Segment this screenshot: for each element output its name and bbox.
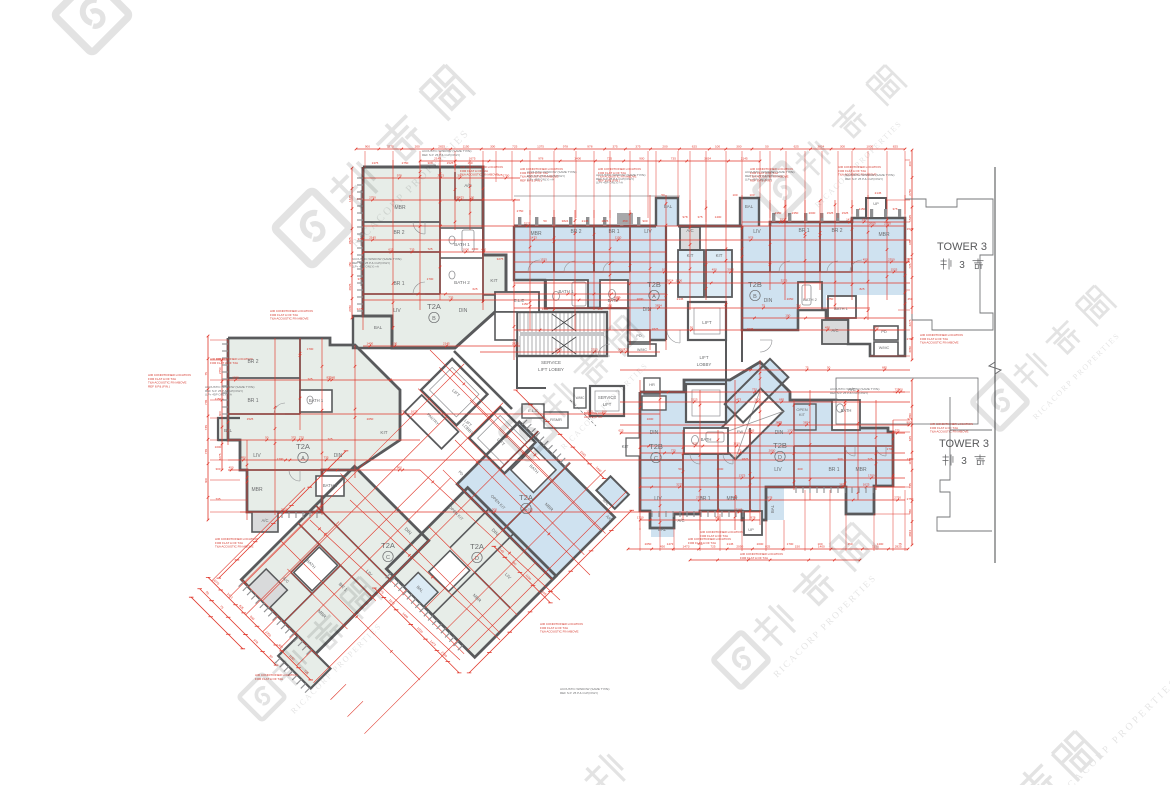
svg-text:T2A: T2A [296, 442, 310, 451]
svg-text:1150: 1150 [542, 307, 549, 311]
svg-text:50: 50 [265, 436, 269, 440]
svg-text:2050: 2050 [645, 542, 652, 546]
svg-text:3824: 3824 [667, 279, 674, 283]
svg-text:450: 450 [825, 326, 830, 330]
svg-text:2145: 2145 [443, 342, 450, 346]
svg-text:TOWER 3: TOWER 3 [937, 241, 987, 253]
svg-text:1525: 1525 [747, 327, 754, 331]
svg-text:MBR: MBR [530, 231, 542, 237]
svg-text:100: 100 [785, 314, 790, 318]
svg-text:2825: 2825 [742, 457, 749, 461]
svg-text:625: 625 [472, 287, 477, 291]
svg-text:1525: 1525 [540, 258, 547, 262]
svg-text:725: 725 [427, 247, 432, 251]
svg-text:75: 75 [401, 410, 405, 414]
svg-text:REF S.P. 25 P.& CLP(ONLY): REF S.P. 25 P.& CLP(ONLY) [560, 691, 598, 695]
svg-text:375: 375 [357, 277, 362, 281]
svg-text:LIV: LIV [654, 496, 662, 502]
svg-text:450: 450 [660, 545, 665, 549]
svg-text:100: 100 [715, 145, 720, 149]
svg-text:MBR: MBR [726, 496, 738, 502]
svg-text:2050: 2050 [787, 297, 794, 301]
svg-text:725: 725 [867, 457, 872, 461]
svg-text:T2B: T2B [748, 280, 762, 289]
svg-text:375: 375 [697, 215, 702, 219]
svg-text:1473: 1473 [457, 196, 464, 200]
svg-text:300: 300 [796, 304, 801, 308]
svg-text:KIT: KIT [687, 253, 694, 258]
svg-text:1150: 1150 [215, 397, 222, 401]
svg-text:LIV: LIV [644, 229, 652, 235]
svg-text:LOBBY: LOBBY [697, 362, 712, 367]
svg-text:BR 1: BR 1 [608, 229, 619, 235]
svg-text:900: 900 [397, 466, 402, 470]
svg-text:KIT: KIT [799, 412, 806, 417]
svg-text:450: 450 [481, 248, 486, 252]
svg-text:1473: 1473 [734, 398, 741, 402]
svg-text:2750: 2750 [517, 209, 524, 213]
svg-text:50: 50 [543, 219, 547, 223]
svg-text:375: 375 [892, 207, 897, 211]
svg-text:A/C: A/C [678, 518, 685, 523]
svg-text:BATH: BATH [701, 437, 712, 442]
svg-text:BAL: BAL [745, 204, 754, 209]
svg-text:3824: 3824 [562, 219, 569, 223]
svg-text:2825: 2825 [652, 327, 659, 331]
svg-text:1150: 1150 [733, 442, 740, 446]
svg-text:MBR: MBR [855, 467, 867, 473]
svg-text:T2B: T2B [773, 441, 787, 450]
svg-text:E: E [524, 507, 528, 513]
svg-text:200: 200 [797, 467, 802, 471]
svg-text:375: 375 [907, 257, 912, 261]
svg-text:2750: 2750 [907, 497, 914, 501]
svg-text:DIN: DIN [643, 307, 652, 313]
svg-text:BR 1: BR 1 [699, 496, 710, 502]
svg-text:2145: 2145 [736, 508, 743, 512]
svg-text:BR 1: BR 1 [247, 398, 258, 404]
svg-text:978: 978 [397, 174, 402, 178]
svg-text:BATH: BATH [608, 298, 619, 303]
svg-text:900: 900 [715, 516, 720, 520]
svg-text:A: A [301, 456, 305, 462]
svg-text:BR 2: BR 2 [570, 229, 581, 235]
svg-text:735: 735 [215, 497, 220, 501]
svg-text:725: 725 [710, 545, 715, 549]
svg-text:2145: 2145 [582, 219, 589, 223]
svg-text:450: 450 [863, 258, 868, 262]
svg-text:1473: 1473 [437, 174, 444, 178]
svg-text:2825: 2825 [602, 219, 609, 223]
svg-text:2050: 2050 [367, 417, 374, 421]
svg-text:300: 300 [492, 508, 497, 512]
svg-text:B: B [432, 316, 436, 322]
svg-text:BATH: BATH [841, 408, 852, 413]
svg-text:BAL: BAL [664, 204, 673, 209]
svg-text:1400: 1400 [574, 157, 581, 161]
svg-text:735: 735 [671, 157, 676, 161]
svg-text:978: 978 [682, 215, 687, 219]
svg-text:1525: 1525 [447, 161, 454, 165]
svg-text:BAL: BAL [374, 325, 383, 330]
svg-text:1700: 1700 [307, 347, 314, 351]
svg-text:1700: 1700 [503, 174, 510, 178]
svg-text:2825: 2825 [348, 283, 352, 290]
svg-text:825: 825 [859, 287, 864, 291]
svg-text:1700: 1700 [427, 277, 434, 281]
svg-text:W/MC: W/MC [637, 348, 647, 352]
svg-text:2750: 2750 [894, 496, 901, 500]
svg-text:978: 978 [748, 236, 753, 240]
svg-text:625: 625 [619, 429, 624, 433]
svg-text:200: 200 [754, 398, 759, 402]
svg-text:1525: 1525 [247, 417, 254, 421]
svg-text:BATH 1: BATH 1 [558, 289, 574, 294]
svg-text:300: 300 [218, 411, 222, 416]
svg-text:1525: 1525 [891, 268, 898, 272]
svg-text:A: A [652, 294, 656, 300]
svg-text:T&A ACOUSTIC FIN ABOVE: T&A ACOUSTIC FIN ABOVE [270, 317, 309, 321]
svg-text:SERVICE: SERVICE [541, 360, 561, 365]
svg-text:T2A: T2A [381, 541, 395, 550]
svg-text:2750: 2750 [827, 297, 834, 301]
svg-text:MBR: MBR [251, 487, 263, 493]
svg-text:3824: 3824 [655, 304, 662, 308]
svg-text:3: 3 [961, 456, 967, 467]
svg-text:1700: 1700 [887, 447, 894, 451]
svg-text:1400: 1400 [715, 215, 722, 219]
svg-text:2350: 2350 [792, 211, 799, 215]
svg-text:1375: 1375 [739, 474, 746, 478]
svg-text:1700: 1700 [787, 542, 794, 546]
svg-text:2000: 2000 [555, 348, 562, 352]
svg-text:2000: 2000 [281, 508, 288, 512]
svg-text:2750: 2750 [402, 161, 409, 165]
svg-text:735: 735 [204, 449, 208, 454]
svg-text:50: 50 [690, 326, 694, 330]
svg-text:W/MC: W/MC [879, 346, 890, 350]
svg-text:1150: 1150 [232, 376, 239, 380]
svg-text:BR 1: BR 1 [798, 228, 809, 234]
svg-text:1700: 1700 [277, 457, 284, 461]
svg-text:1000: 1000 [462, 248, 469, 252]
svg-text:HR: HR [649, 382, 655, 387]
svg-text:1525: 1525 [908, 215, 912, 222]
svg-text:RSMR: RSMR [550, 417, 562, 422]
svg-text:2145: 2145 [875, 191, 882, 195]
svg-text:3050: 3050 [727, 268, 734, 272]
svg-text:A/C: A/C [262, 518, 269, 523]
svg-text:1700: 1700 [787, 429, 794, 433]
svg-text:900: 900 [874, 326, 879, 330]
svg-text:KIT: KIT [380, 430, 387, 435]
svg-text:300: 300 [204, 478, 208, 483]
svg-text:725: 725 [671, 449, 676, 453]
svg-text:1700: 1700 [907, 457, 914, 461]
svg-text:LIFT: LIFT [702, 320, 712, 325]
svg-text:900: 900 [365, 145, 370, 149]
svg-text:BR 2: BR 2 [393, 230, 404, 236]
svg-text:2350: 2350 [888, 258, 895, 262]
svg-text:1400: 1400 [366, 342, 373, 346]
svg-text:DIN: DIN [650, 430, 659, 436]
svg-text:A/C: A/C [686, 228, 693, 233]
svg-text:FW: FW [737, 429, 743, 434]
svg-text:50: 50 [678, 467, 682, 471]
svg-text:625: 625 [908, 436, 912, 441]
svg-text:2050: 2050 [348, 305, 352, 312]
svg-text:(LP+ 45P ONLY) +A: (LP+ 45P ONLY) +A [352, 265, 379, 269]
svg-text:UP: UP [873, 201, 879, 206]
svg-text:D: D [778, 455, 782, 461]
svg-text:735: 735 [204, 400, 208, 405]
svg-text:FOR FLAT A OF T2A: FOR FLAT A OF T2A [688, 541, 716, 545]
svg-text:300: 300 [215, 467, 220, 471]
svg-text:UP: UP [748, 527, 754, 532]
svg-text:2750: 2750 [907, 337, 914, 341]
svg-text:725: 725 [299, 436, 304, 440]
svg-text:2000: 2000 [809, 211, 816, 215]
svg-text:3275: 3275 [357, 307, 364, 311]
svg-text:T2A: T2A [470, 542, 484, 551]
svg-text:75: 75 [738, 449, 742, 453]
svg-text:BATH 2: BATH 2 [454, 280, 470, 285]
svg-text:200: 200 [662, 145, 667, 149]
svg-text:978: 978 [563, 145, 568, 149]
svg-text:C: C [386, 555, 390, 561]
svg-text:450: 450 [908, 509, 912, 514]
svg-text:75: 75 [204, 372, 208, 376]
svg-text:T2A: T2A [427, 302, 441, 311]
svg-text:375: 375 [612, 145, 617, 149]
svg-text:C: C [654, 456, 658, 462]
svg-text:1675: 1675 [863, 483, 870, 487]
svg-text:BATH 1: BATH 1 [309, 398, 324, 403]
svg-text:T2B: T2B [649, 442, 663, 451]
svg-text:450: 450 [712, 268, 717, 272]
svg-text:900: 900 [639, 157, 644, 161]
svg-text:2000: 2000 [717, 467, 724, 471]
svg-text:1525: 1525 [907, 227, 914, 231]
svg-text:1375: 1375 [537, 145, 544, 149]
svg-text:2000: 2000 [637, 297, 644, 301]
svg-text:100: 100 [817, 542, 822, 546]
svg-text:1400: 1400 [877, 542, 884, 546]
svg-text:3824: 3824 [803, 421, 810, 425]
svg-text:1525: 1525 [827, 211, 834, 215]
svg-text:100: 100 [732, 193, 737, 197]
svg-text:200: 200 [908, 161, 912, 166]
svg-text:75: 75 [898, 542, 902, 546]
svg-text:2000: 2000 [757, 542, 764, 546]
svg-text:DIN: DIN [775, 430, 784, 436]
svg-text:735: 735 [752, 388, 757, 392]
svg-text:T&A ACOUSTIC FIN ABOVE: T&A ACOUSTIC FIN ABOVE [540, 630, 579, 634]
svg-text:450: 450 [229, 466, 234, 470]
svg-text:PD: PD [881, 329, 887, 334]
svg-text:625: 625 [692, 145, 697, 149]
svg-text:725: 725 [607, 157, 612, 161]
svg-text:3824: 3824 [908, 530, 912, 537]
svg-text:300: 300 [837, 457, 842, 461]
svg-text:1000: 1000 [647, 417, 654, 421]
svg-text:685: 685 [779, 398, 784, 402]
svg-text:T2B: T2B [647, 280, 661, 289]
svg-text:T&A ACOUSTIC FIN ABOVE: T&A ACOUSTIC FIN ABOVE [920, 341, 959, 345]
svg-text:900: 900 [906, 421, 911, 425]
svg-text:825: 825 [893, 145, 898, 149]
svg-text:625: 625 [693, 442, 698, 446]
svg-text:900: 900 [642, 219, 647, 223]
svg-text:KIT: KIT [490, 278, 497, 283]
svg-text:1375: 1375 [372, 161, 379, 165]
svg-text:50: 50 [661, 193, 665, 197]
svg-text:3275: 3275 [676, 483, 683, 487]
svg-text:725: 725 [512, 145, 517, 149]
svg-text:KIT: KIT [716, 253, 723, 258]
svg-text:LIV: LIV [753, 229, 761, 235]
svg-text:2145: 2145 [727, 542, 734, 546]
svg-text:300: 300 [597, 307, 602, 311]
svg-text:BATH 1: BATH 1 [454, 242, 470, 247]
svg-text:75: 75 [762, 304, 766, 308]
svg-text:1000: 1000 [215, 445, 222, 449]
svg-text:1525: 1525 [691, 398, 698, 402]
svg-text:2750: 2750 [369, 196, 376, 200]
svg-text:900: 900 [898, 388, 903, 392]
svg-text:2825: 2825 [512, 342, 519, 346]
svg-text:B: B [753, 294, 757, 300]
svg-text:150: 150 [861, 218, 866, 222]
svg-text:A/C: A/C [464, 183, 471, 188]
svg-text:200: 200 [392, 342, 397, 346]
svg-text:735: 735 [324, 456, 329, 460]
svg-text:T2A: T2A [519, 493, 533, 502]
svg-text:978: 978 [538, 157, 543, 161]
svg-text:3275: 3275 [218, 453, 222, 460]
svg-text:(LP+ 45P ONLY) +A: (LP+ 45P ONLY) +A [527, 178, 554, 182]
svg-text:300: 300 [840, 145, 845, 149]
svg-text:685: 685 [882, 366, 887, 370]
svg-text:2825: 2825 [776, 421, 783, 425]
svg-text:725: 725 [908, 263, 912, 268]
svg-text:BR 2: BR 2 [247, 359, 258, 365]
svg-text:300: 300 [490, 145, 495, 149]
svg-text:LIV: LIV [253, 453, 261, 459]
svg-text:BATH 2: BATH 2 [323, 483, 338, 488]
svg-text:200: 200 [415, 145, 420, 149]
svg-text:BATH 2: BATH 2 [803, 297, 817, 302]
svg-text:FOR FLAT A OF T2A: FOR FLAT A OF T2A [740, 556, 768, 560]
svg-text:50: 50 [827, 366, 831, 370]
svg-text:(LP+ 45P ONLY) +A: (LP+ 45P ONLY) +A [596, 181, 623, 185]
svg-text:2000: 2000 [472, 247, 479, 251]
svg-text:1400: 1400 [675, 279, 682, 283]
svg-text:BAL: BAL [224, 428, 233, 433]
svg-text:REF 8.P& (FIN.): REF 8.P& (FIN.) [148, 384, 170, 388]
svg-text:978: 978 [767, 496, 772, 500]
svg-text:FOR FLAT A OF T2A: FOR FLAT A OF T2A [210, 361, 238, 365]
svg-text:735: 735 [908, 483, 912, 488]
svg-text:D: D [475, 556, 479, 562]
svg-text:735: 735 [409, 248, 414, 252]
svg-text:BAL: BAL [770, 504, 775, 513]
svg-text:TOWER 3: TOWER 3 [939, 438, 989, 450]
svg-text:450: 450 [241, 456, 246, 460]
svg-text:978: 978 [750, 516, 755, 520]
svg-text:725: 725 [327, 437, 332, 441]
svg-text:LIV: LIV [774, 467, 782, 473]
svg-text:BR 2: BR 2 [831, 228, 842, 234]
svg-text:2145: 2145 [677, 297, 684, 301]
svg-text:3275: 3275 [497, 257, 504, 261]
svg-text:725: 725 [307, 377, 312, 381]
svg-text:2750: 2750 [908, 189, 912, 196]
svg-text:978: 978 [907, 417, 912, 421]
svg-text:150: 150 [795, 545, 800, 549]
svg-text:1700: 1700 [868, 474, 875, 478]
svg-text:1525: 1525 [842, 211, 849, 215]
svg-text:BATH 1: BATH 1 [834, 306, 848, 311]
svg-text:E.L.E: E.L.E [514, 298, 524, 303]
svg-text:LIFT LOBBY: LIFT LOBBY [538, 367, 564, 372]
svg-text:3824: 3824 [704, 157, 711, 161]
svg-text:450: 450 [907, 297, 912, 301]
svg-text:DIN: DIN [334, 453, 343, 459]
svg-text:T&A ACOUSTIC FIN ABOVE: T&A ACOUSTIC FIN ABOVE [215, 545, 254, 549]
svg-text:DIN: DIN [764, 298, 773, 304]
svg-text:MBR: MBR [878, 232, 890, 238]
svg-text:3275: 3275 [908, 319, 912, 326]
svg-text:3050: 3050 [908, 346, 912, 353]
svg-text:LIV: LIV [393, 308, 401, 314]
svg-text:BR 1: BR 1 [828, 467, 839, 473]
svg-text:A/C: A/C [832, 328, 839, 333]
svg-text:735: 735 [204, 425, 208, 430]
svg-text:50: 50 [765, 145, 769, 149]
svg-text:1675: 1675 [469, 157, 476, 161]
svg-text:1675: 1675 [411, 410, 418, 414]
svg-text:LIFT: LIFT [699, 355, 708, 360]
svg-text:T&A ACOUSTIC FIN ABOVE: T&A ACOUSTIC FIN ABOVE [460, 173, 499, 177]
svg-text:1473: 1473 [667, 542, 674, 546]
svg-text:2050: 2050 [736, 545, 743, 549]
svg-text:300: 300 [736, 145, 741, 149]
svg-text:KIT: KIT [622, 444, 629, 449]
svg-text:2145: 2145 [329, 376, 336, 380]
svg-text:735: 735 [448, 296, 453, 300]
svg-text:1150: 1150 [463, 145, 470, 149]
svg-text:BR 1: BR 1 [393, 281, 404, 287]
svg-text:3: 3 [959, 260, 965, 271]
svg-text:(LP+ 45P ONLY) +A: (LP+ 45P ONLY) +A [205, 393, 232, 397]
svg-text:2145: 2145 [748, 429, 755, 433]
svg-text:BAL: BAL [658, 527, 667, 532]
svg-text:DIN: DIN [459, 308, 468, 314]
svg-text:2750: 2750 [218, 367, 222, 374]
svg-text:450: 450 [622, 219, 627, 223]
svg-text:978: 978 [587, 145, 592, 149]
svg-text:3275: 3275 [781, 279, 788, 283]
svg-text:1473: 1473 [683, 545, 690, 549]
svg-text:1150: 1150 [859, 207, 866, 211]
svg-text:A/C: A/C [848, 387, 855, 392]
svg-text:W/MC: W/MC [576, 396, 586, 400]
svg-text:1150: 1150 [615, 236, 622, 240]
svg-text:625: 625 [794, 145, 799, 149]
svg-text:75: 75 [805, 366, 809, 370]
svg-text:375: 375 [635, 145, 640, 149]
